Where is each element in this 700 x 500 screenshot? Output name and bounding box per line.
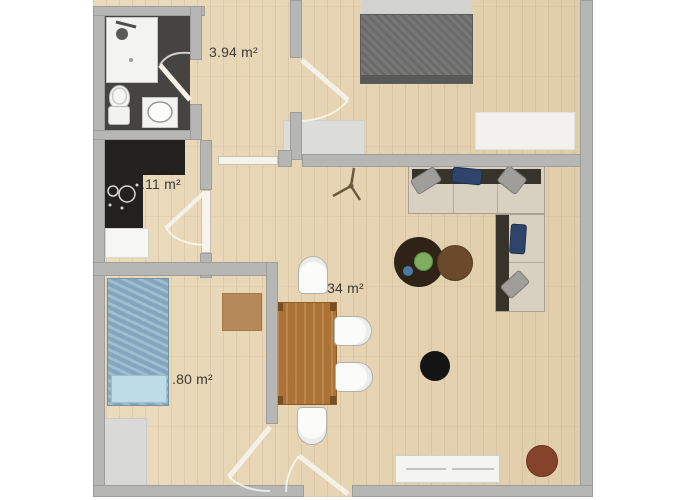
dining-chair-right-1[interactable] [334, 316, 372, 346]
wall-left [93, 6, 105, 497]
blue-decor-bowl [403, 266, 413, 276]
kitchen-counter-top[interactable] [105, 140, 185, 175]
bedroom-area-label: .80 m² [172, 371, 213, 387]
double-bed-gray[interactable] [360, 14, 473, 84]
wall-top-bathroom [93, 6, 205, 16]
table-corner [330, 396, 336, 404]
bed-foot-cover [111, 375, 167, 403]
wall-bathroom-hall-upper [190, 6, 202, 60]
wall-bathroom-kitchen [93, 130, 202, 140]
sink-cabinet[interactable] [142, 97, 178, 128]
sofa-back-shadow [496, 215, 509, 311]
floor-plan-canvas: 3.94 m² 3.11 m² 0.34 m² .80 m² [0, 0, 700, 500]
dining-table[interactable] [276, 302, 337, 405]
single-bed-blue[interactable] [107, 278, 169, 406]
sideboard[interactable] [395, 455, 500, 483]
coffee-table-brown[interactable] [437, 245, 473, 281]
sofa-cushion-seam [509, 262, 544, 263]
dining-chair-top[interactable] [298, 256, 328, 294]
desk-mat[interactable] [222, 293, 262, 331]
table-corner [330, 303, 336, 311]
shower[interactable] [106, 17, 158, 83]
wall-connector [278, 150, 292, 167]
wall-small-bedroom-right [266, 262, 278, 424]
toilet-tank[interactable] [108, 106, 130, 125]
white-rug-bedroom[interactable] [475, 112, 575, 150]
wall-bedroom-living [302, 154, 593, 167]
wall-small-bedroom-top [93, 262, 278, 276]
pouf-red[interactable] [526, 445, 558, 477]
wall-kitchen-hall-upper [200, 140, 212, 190]
bed-footboard [361, 75, 472, 83]
sideboard-handle [406, 468, 446, 470]
kitchen-door-closed[interactable] [201, 190, 211, 253]
gray-rug-small-bedroom[interactable] [103, 418, 147, 495]
kitchen-counter-side[interactable] [105, 175, 143, 228]
wall-bottom-right [352, 485, 593, 497]
sofa-cushion-seam [497, 184, 498, 213]
dining-chair-bottom[interactable] [297, 407, 327, 445]
wall-hall-bedroom-upper [290, 0, 302, 58]
hallway-area-label: 3.94 m² [209, 44, 258, 60]
wall-bathroom-hall-lower [190, 104, 202, 140]
pouf-black[interactable] [420, 351, 450, 381]
wall-bottom-left [93, 485, 304, 497]
kitchen-appliance[interactable] [105, 228, 149, 258]
wall-right [580, 0, 593, 497]
sofa-pillow-navy[interactable] [509, 223, 527, 254]
dining-chair-right-2[interactable] [335, 362, 373, 392]
hall-living-door-open[interactable] [218, 156, 278, 165]
sofa-pillow-navy[interactable] [451, 166, 483, 185]
sideboard-handle [452, 468, 494, 470]
sofa-cushion-seam [453, 184, 454, 213]
green-decor-bowl [414, 252, 433, 271]
